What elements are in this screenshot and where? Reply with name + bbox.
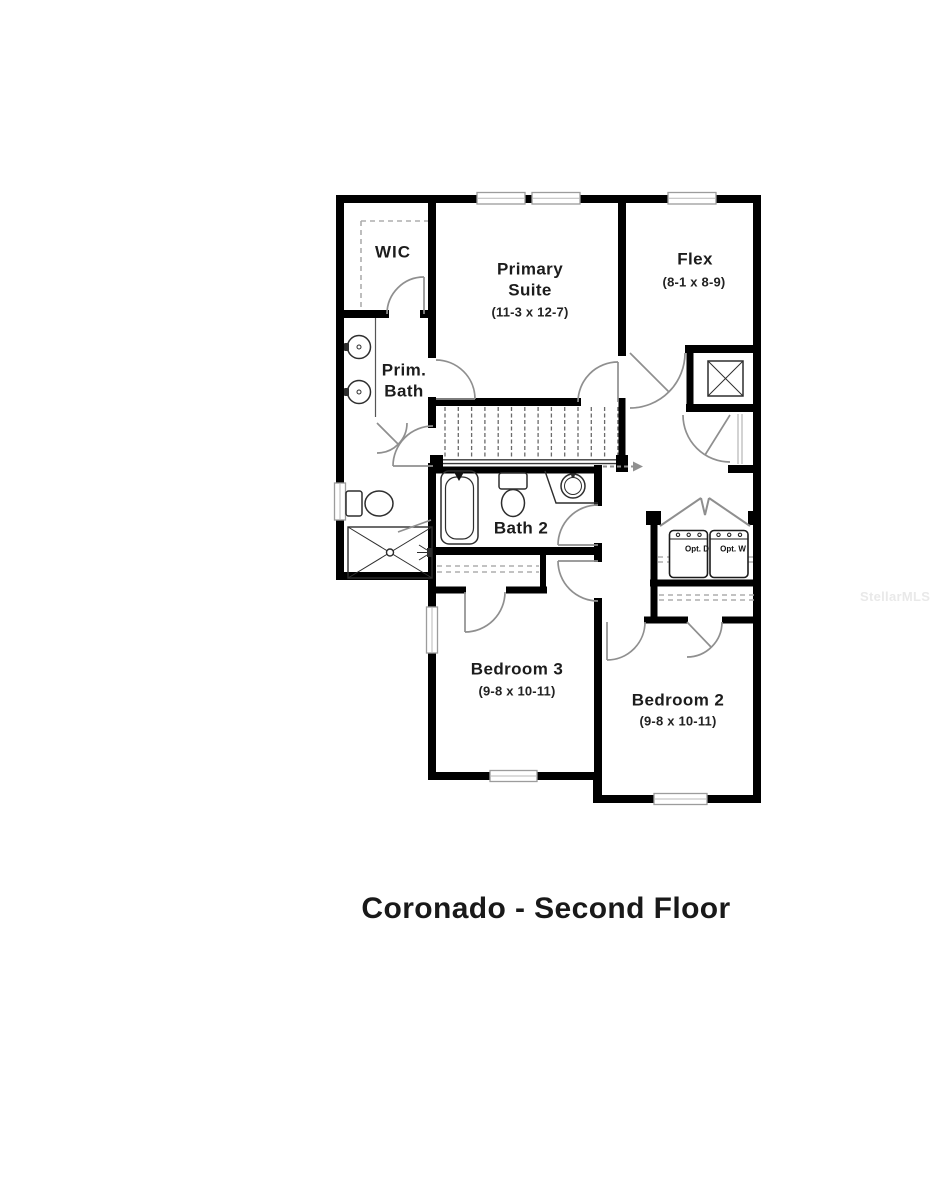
floor-plan-drawing	[0, 0, 936, 1200]
shower-icon	[348, 520, 432, 578]
dryer-icon	[670, 531, 708, 578]
primary-suite-bath-door-icon	[436, 360, 475, 399]
laundry-opening-stubs	[646, 511, 757, 525]
bedroom3-closet-door-icon	[465, 592, 505, 632]
sink-icon	[561, 474, 585, 498]
bathtub-icon	[441, 471, 478, 544]
mechanical-chase-icon	[708, 361, 743, 396]
laundry-bifold-doors-icon	[660, 498, 750, 526]
floor-plan-page: WIC Primary Suite (11-3 x 12-7) Flex (8-…	[0, 0, 936, 1200]
wic-door-icon	[387, 277, 424, 314]
bath2-door-icon	[558, 505, 598, 545]
bedroom2-door-icon	[607, 622, 645, 660]
hall-closet-shelf-lines	[738, 414, 742, 464]
hall-closet-door-icon	[683, 415, 730, 462]
plan-title: Coronado - Second Floor	[361, 892, 730, 926]
washer-icon	[710, 531, 748, 578]
sink-icon	[344, 336, 371, 359]
primary-suite-entry-door-icon	[578, 362, 618, 402]
prim-bath-vanity	[344, 318, 376, 417]
sink-icon	[344, 381, 371, 404]
toilet-icon	[346, 491, 393, 516]
bath-linen-closet-door-icon	[377, 423, 407, 453]
bedroom2-closet-door-icon	[687, 622, 722, 657]
bedroom3-door-icon	[558, 561, 598, 601]
toilet-icon	[499, 473, 527, 517]
stairs	[430, 407, 643, 472]
flex-door-icon	[630, 353, 685, 408]
prim-bath-entry-door-icon	[393, 426, 433, 466]
bath2-vanity	[545, 471, 598, 503]
watermark: StellarMLS	[860, 589, 930, 604]
